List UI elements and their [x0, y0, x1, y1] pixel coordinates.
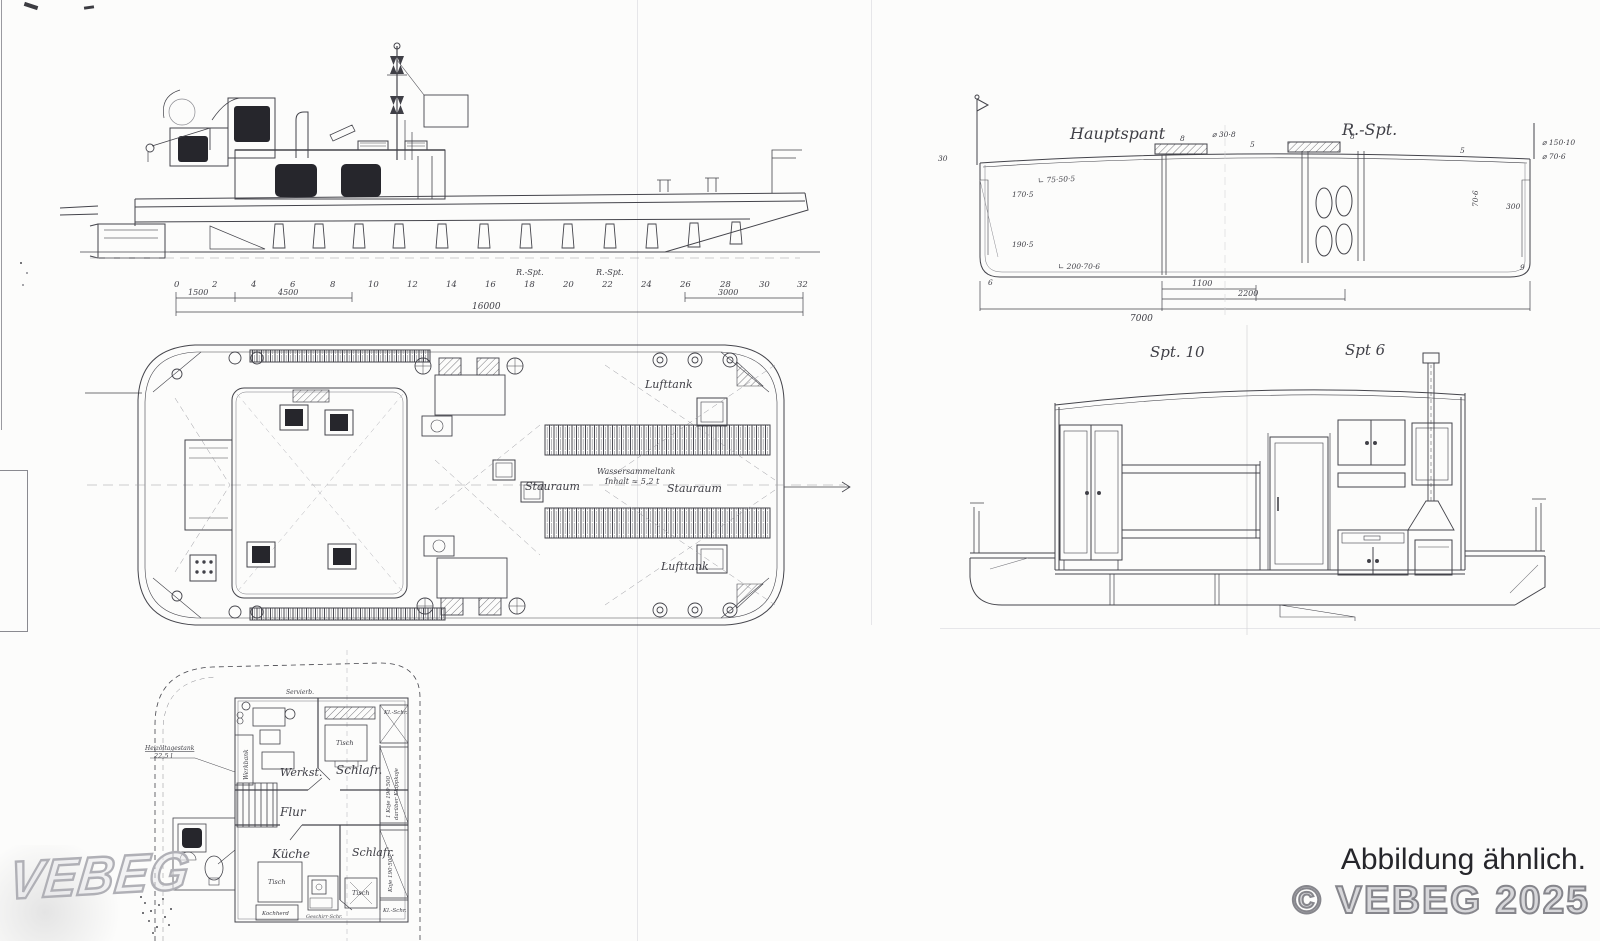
title-hauptspant: Hauptspant — [1069, 124, 1166, 143]
digit: 6 — [988, 278, 993, 287]
frame-number: 10 — [368, 280, 379, 290]
blueprint-scan-page: 0 2 4 6 8 10 12 14 16 18 20 22 24 26 28 … — [0, 0, 1600, 941]
label-koje-2: darüber Klappkoje — [394, 767, 400, 820]
left-edge-fitting-outline — [0, 470, 28, 632]
label-schlafr-top: Schlafr. — [336, 763, 382, 777]
ann-right-4: 70·6 — [1471, 190, 1480, 207]
ann-side-bottom: 190·5 — [1012, 240, 1034, 249]
wheelhouse — [170, 98, 308, 166]
ann-side-top: 170·5 — [1012, 190, 1034, 199]
label-flur: Flur — [279, 805, 307, 819]
frame-number: 24 — [640, 280, 652, 290]
rspt-scale-label: R.-Spt. — [515, 268, 544, 277]
label-stauraum-left: Stauraum — [525, 480, 580, 493]
ann-left-1: 30 — [938, 154, 948, 163]
dim-3000: 3000 — [718, 288, 738, 297]
midship-section-view: Hauptspant R.-Spt. ∟ 75·50·5 ⌀ 30·8 170·… — [930, 85, 1600, 334]
title-spt6: Spt 6 — [1345, 341, 1386, 359]
ann-bottom-angle: ∟ 200·70·6 — [1058, 262, 1100, 271]
label-tank-name: Heizöltagestank — [144, 745, 195, 752]
frame-number: 0 — [174, 280, 180, 290]
frame-number: 8 — [330, 280, 336, 290]
ann-right-3: 300 — [1506, 202, 1521, 211]
frame-number: 18 — [524, 280, 535, 290]
deck-hatches — [1155, 142, 1340, 154]
hull-cross-section — [980, 154, 1530, 277]
ann-hatch-bar: ⌀ 30·8 — [1212, 130, 1236, 139]
side-elevation-view: 0 2 4 6 8 10 12 14 16 18 20 22 24 26 28 … — [60, 0, 820, 334]
label-lufttank-top: Lufttank — [644, 378, 693, 391]
label-tisch-1: Tisch — [336, 739, 354, 747]
digit: 5 — [1460, 146, 1465, 155]
hull-outline — [85, 345, 850, 625]
title-spt10: Spt. 10 — [1150, 343, 1205, 361]
stove-hood-chimney — [1408, 353, 1454, 530]
label-tank-volume: 22,5 l — [153, 752, 173, 760]
frame-scale: 0 2 4 6 8 10 12 14 16 18 20 22 24 26 28 … — [174, 268, 808, 290]
scan-smudge — [24, 2, 39, 10]
hull-frames-piles — [210, 222, 742, 249]
deck-plan-labels: Lufttank Lufttank Stauraum Stauraum Wass… — [525, 378, 722, 573]
ann-deck-angle: ∟ 75·50·5 — [1038, 174, 1076, 185]
frame-number: 16 — [485, 280, 496, 290]
galley-cabinets-spt6 — [1338, 420, 1452, 575]
label-watertank-1: Wassersammeltank — [597, 467, 676, 476]
frame-number: 32 — [797, 280, 808, 290]
dim-1100: 1100 — [1192, 279, 1212, 288]
dim-4500: 4500 — [277, 288, 298, 297]
label-tisch-2: Tisch — [268, 878, 286, 886]
ann-right-2: ⌀ 70·6 — [1542, 152, 1566, 161]
label-kl-schr-bottom: Kl.-Schr. — [382, 908, 407, 914]
label-watertank-2: Inhalt ≈ 5,2 t — [604, 477, 660, 486]
label-lufttank-bottom: Lufttank — [660, 560, 709, 573]
label-kochherd: Kochherd — [261, 911, 289, 917]
hull-below — [970, 499, 1546, 621]
scan-edge-line — [1, 0, 2, 430]
bunks-spt10 — [1122, 461, 1260, 570]
bedroom-top — [325, 707, 375, 767]
bow-fittings — [657, 150, 802, 193]
label-koje-1: 1 Koje 190·500 — [386, 776, 392, 818]
mast-staffs — [975, 95, 1534, 165]
label-werkst: Werkst. — [280, 766, 322, 779]
frame-number: 4 — [250, 280, 256, 290]
frame-sections-view: Spt. 10 Spt 6 — [960, 325, 1560, 639]
frame-number: 26 — [679, 280, 691, 290]
frame-number: 14 — [446, 280, 457, 290]
dim-1500: 1500 — [188, 288, 208, 297]
label-kl-schr-top: Kl.-Schr. — [383, 710, 408, 716]
label-servier: Servierb. — [286, 689, 314, 696]
frame-number: 22 — [601, 280, 613, 290]
dim-16000: 16000 — [472, 302, 501, 312]
frame-number: 30 — [759, 280, 770, 290]
vebeg-watermark: VEBEG — [6, 840, 193, 912]
rspt-scale-label: R.-Spt. — [595, 268, 624, 277]
deck-plan-view: Lufttank Lufttank Stauraum Stauraum Wass… — [85, 330, 965, 644]
frame-number: 2 — [211, 280, 217, 290]
winch-forward — [415, 358, 523, 436]
dimension-lines: 1500 4500 3000 16000 — [176, 288, 803, 316]
copyright-text: © VEBEG 2025 — [1292, 879, 1590, 923]
frame-webs — [1162, 151, 1364, 275]
label-stauraum-right: Stauraum — [667, 482, 722, 495]
cabin-roof-plan — [185, 388, 407, 598]
label-koje-bottom: Koje 190·500 — [388, 855, 394, 893]
skylights — [247, 405, 356, 569]
frame-number: 12 — [407, 280, 418, 290]
label-tisch-3: Tisch — [352, 889, 370, 897]
wardrobe-spt10 — [1060, 425, 1122, 570]
label-kueche: Küche — [271, 847, 310, 861]
scan-speckles — [20, 262, 22, 264]
digit: 9 — [1520, 263, 1525, 272]
label-geschirr: Geschirr-Schr. — [306, 914, 343, 920]
titles: Spt. 10 Spt 6 — [1150, 341, 1386, 361]
digit: 5 — [1250, 140, 1255, 149]
label-werkbank: Werkbank — [243, 749, 250, 780]
digit: 8 — [1350, 132, 1355, 141]
dim-2200: 2200 — [1237, 289, 1258, 298]
ann-right-1: ⌀ 150·10 — [1542, 138, 1575, 147]
digit: 8 — [1180, 134, 1185, 143]
section-dimensions: 1100 2200 7000 — [980, 279, 1530, 324]
dim-7000: 7000 — [1130, 314, 1153, 324]
door-spt6 — [1268, 433, 1330, 570]
disclaimer-text: Abbildung ähnlich. — [1341, 843, 1586, 877]
frame-number: 20 — [562, 280, 574, 290]
winch-aft — [417, 536, 525, 615]
